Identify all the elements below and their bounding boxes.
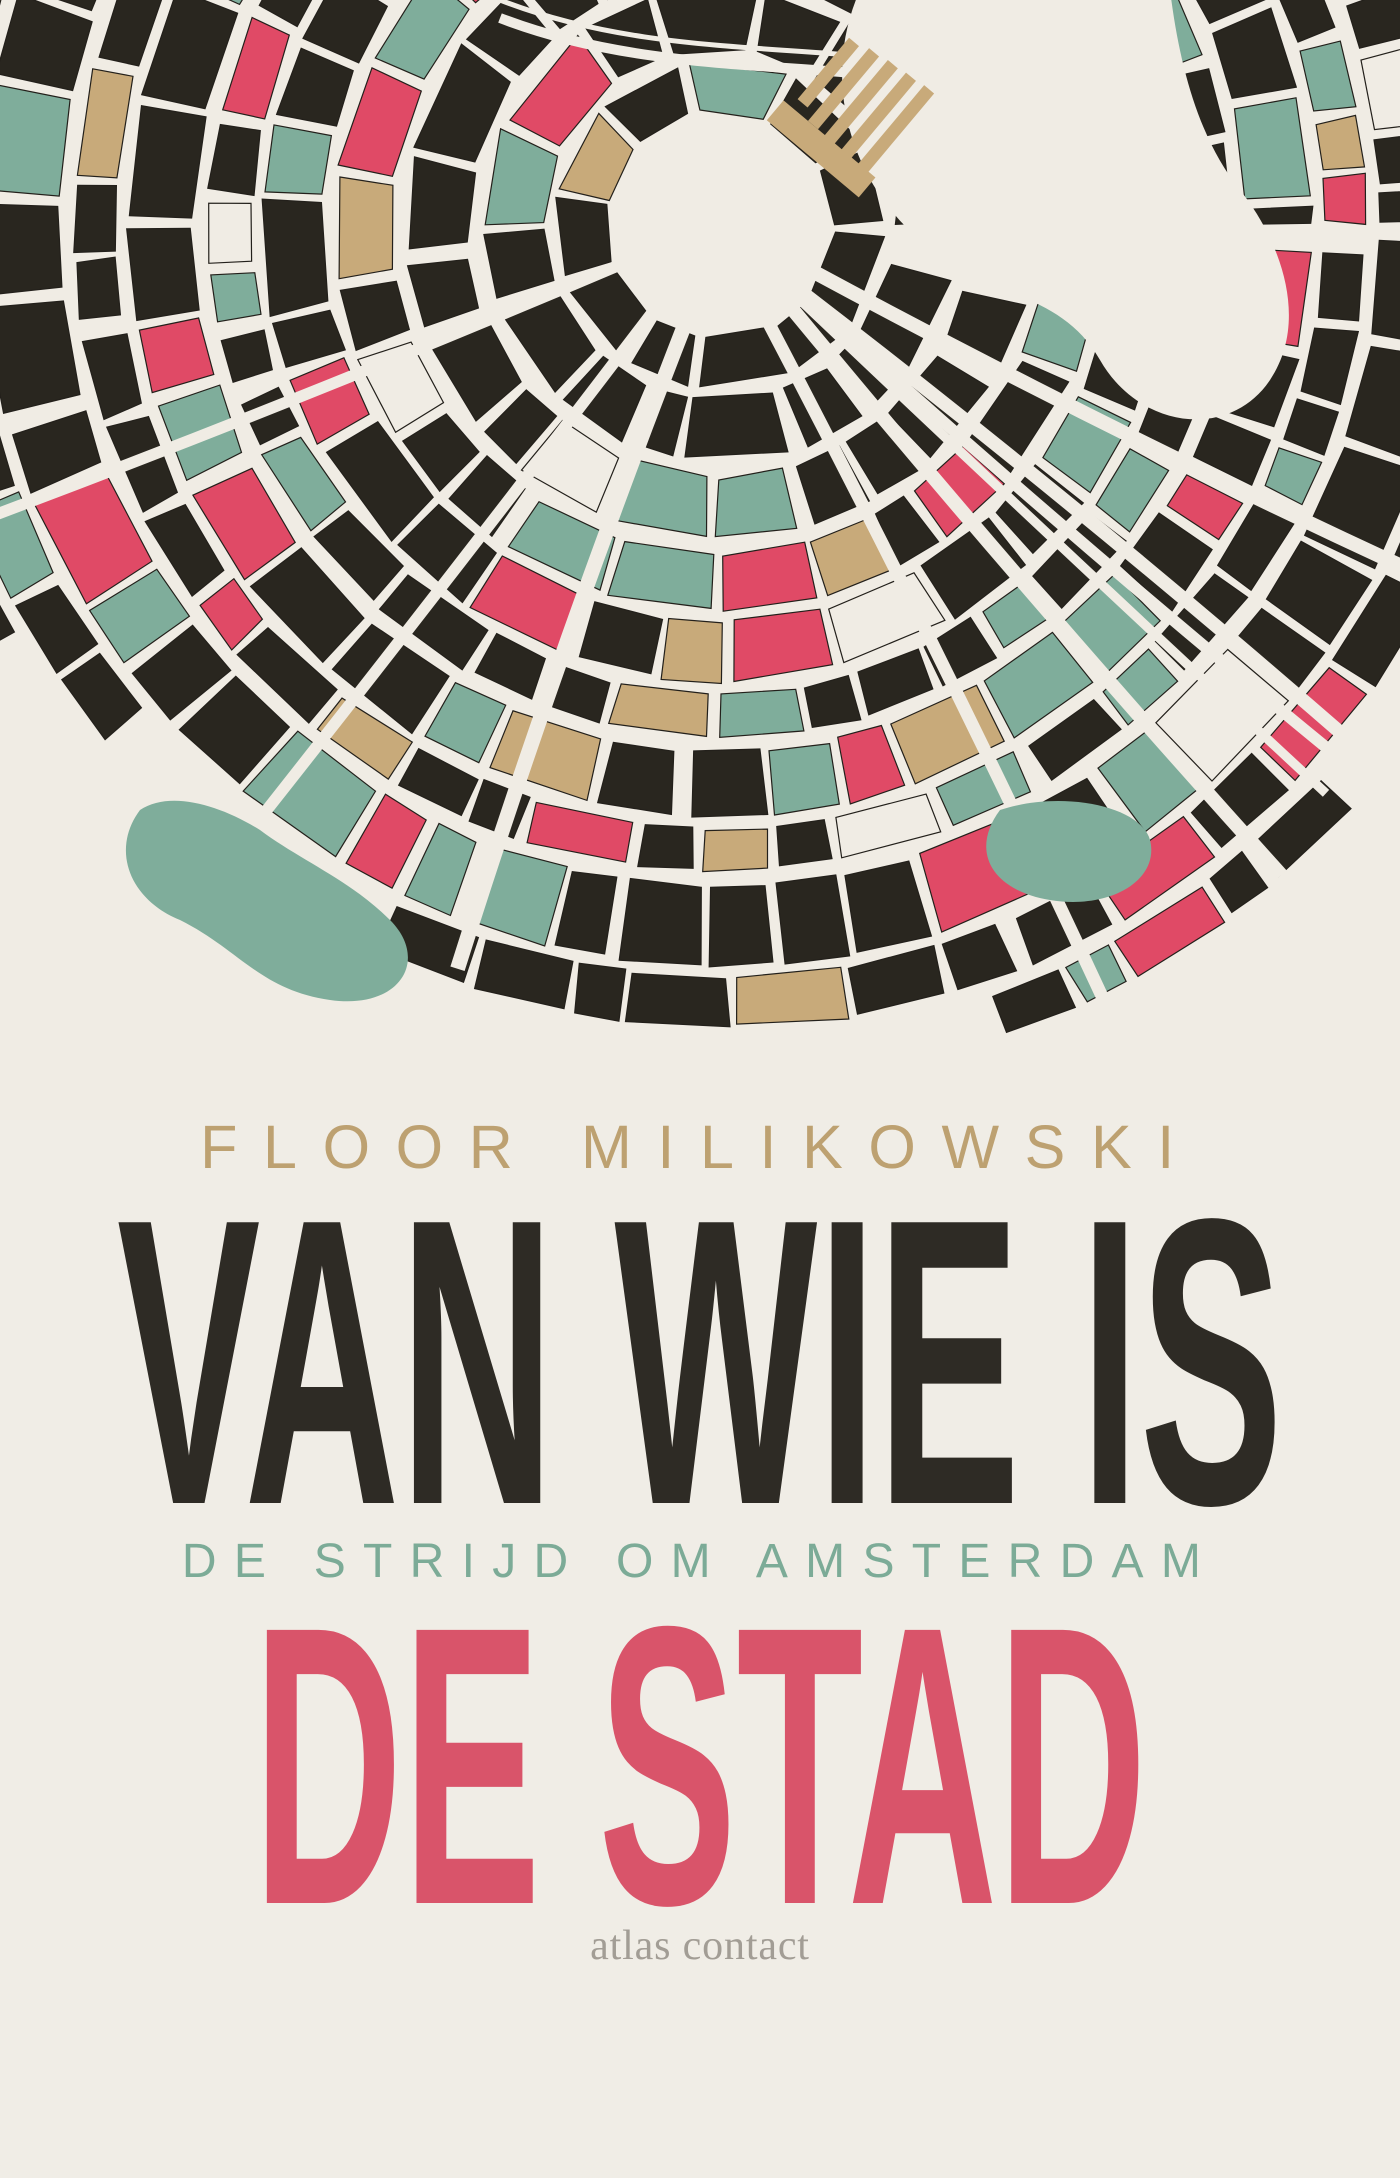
city-block: [692, 749, 768, 817]
publisher-logo: atlas contact: [0, 1922, 1400, 1970]
city-block: [209, 203, 252, 263]
amsterdam-map-illustration: [0, 0, 1400, 1120]
city-block: [74, 185, 117, 252]
city-block: [129, 106, 206, 218]
city-block: [685, 393, 788, 457]
city-block: [339, 177, 393, 279]
city-block: [638, 825, 693, 869]
city-block: [777, 820, 832, 866]
city-block: [0, 204, 62, 295]
city-block: [715, 468, 796, 536]
city-block: [556, 198, 611, 276]
city-block: [77, 257, 120, 319]
city-block: [265, 125, 331, 194]
city-block: [661, 619, 722, 684]
title-line-1-block: VAN WIE IS: [0, 1205, 1400, 1515]
city-block: [737, 967, 849, 1024]
city-block: [619, 879, 701, 965]
city-block: [1323, 173, 1366, 224]
city-block: [769, 744, 839, 815]
city-block: [1316, 115, 1364, 169]
city-block: [776, 875, 850, 964]
city-block: [709, 886, 773, 967]
city-block: [127, 228, 199, 320]
city-block: [0, 84, 70, 196]
book-cover: FLOOR MILIKOWSKI VAN WIE IS DE STRIJD OM…: [0, 0, 1400, 2178]
city-block: [262, 199, 328, 316]
city-block: [409, 157, 475, 249]
city-block: [211, 273, 261, 322]
city-block: [626, 973, 731, 1026]
title-line-2-block: DE STAD: [0, 1612, 1400, 1912]
city-block: [720, 689, 804, 737]
city-block: [575, 963, 626, 1021]
title-line-1: VAN WIE IS: [117, 1135, 1283, 1590]
city-block: [703, 829, 768, 872]
city-block: [1379, 188, 1400, 222]
city-block: [1319, 253, 1363, 321]
